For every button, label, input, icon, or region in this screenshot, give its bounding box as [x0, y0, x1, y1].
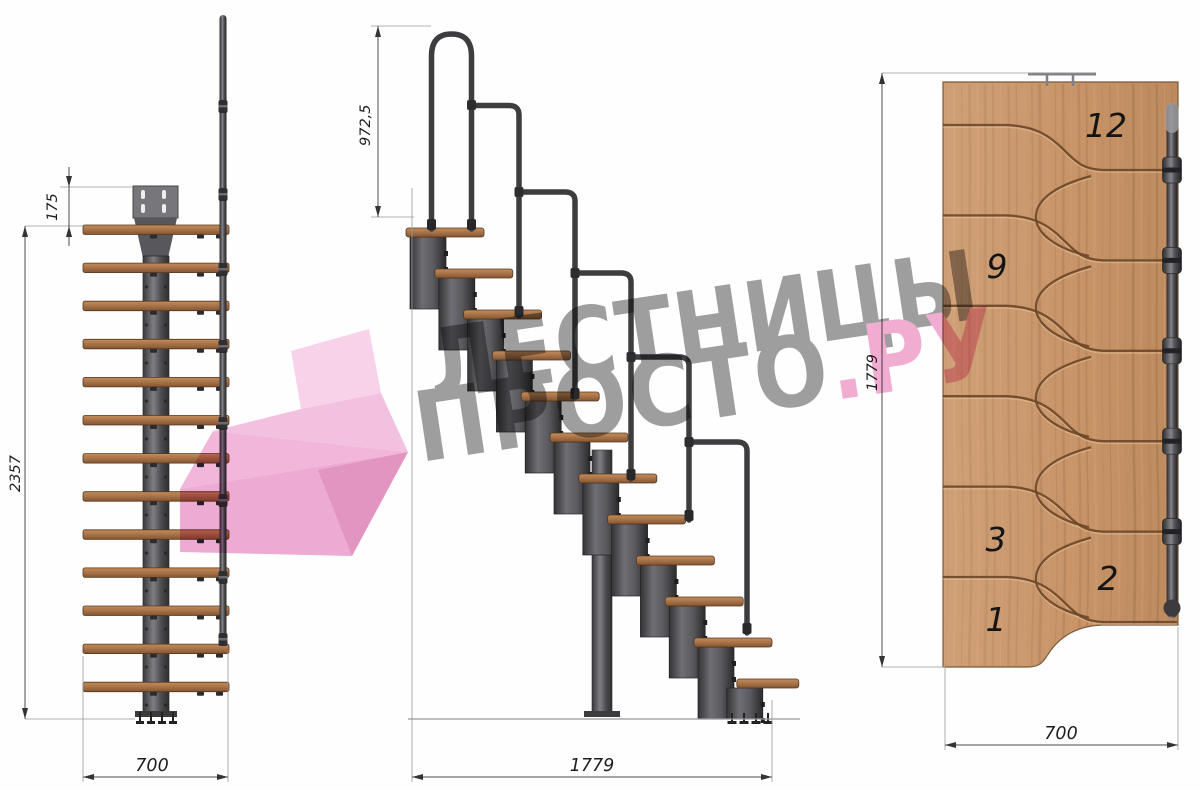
post-joint-ridge [219, 638, 228, 641]
front-tread [83, 606, 229, 616]
column-rivet [145, 551, 148, 554]
side-tread [521, 392, 599, 401]
anchor-bolt-head [147, 721, 155, 724]
baluster-fitting-notch [1163, 348, 1182, 353]
anchor-bolt-head [169, 721, 177, 724]
column-rivet [164, 323, 167, 326]
column-rivet [164, 703, 167, 706]
tread-bracket-nub [197, 235, 204, 239]
rail-tee-fitting [685, 437, 694, 447]
front-tread [83, 225, 229, 235]
anchor-bolt-head [136, 721, 144, 724]
support-column-base [584, 711, 620, 717]
module-bolt [674, 579, 678, 584]
column-rivet [164, 475, 167, 478]
tread-bracket-nub [150, 577, 157, 581]
dim-arrow [375, 26, 381, 37]
front-tread [83, 377, 229, 387]
step-label-1: 1 [986, 600, 1007, 639]
baluster-fitting-notch [1163, 439, 1182, 444]
side-tread [694, 638, 772, 647]
module-bolt [588, 456, 592, 461]
step-label-3: 3 [986, 520, 1007, 559]
tread-bracket-nub [197, 501, 204, 505]
front-tread [83, 454, 229, 464]
baluster-fitting-notch [1163, 168, 1182, 173]
module-bolt [502, 333, 506, 338]
front-tread [83, 568, 229, 578]
dim-arrow [412, 774, 423, 780]
rail-foot-fitting [685, 510, 694, 521]
column-rivet [145, 475, 148, 478]
floor-anchor-bolt-head [752, 721, 761, 724]
post-joint-ridge [219, 105, 228, 108]
dim-arrow [375, 206, 381, 217]
post-joint-ridge [219, 345, 228, 348]
dim-total-height: 2357 [8, 454, 24, 492]
post-joint-ridge [219, 193, 228, 196]
step-label-12: 12 [1085, 106, 1127, 145]
tread-bracket-nub [150, 311, 157, 315]
dim-arrow [217, 774, 228, 780]
module-bolt [732, 661, 736, 666]
side-tread [608, 515, 686, 524]
tread-bracket-nub [150, 539, 157, 543]
dim-side-length: 1779 [570, 756, 615, 776]
rail-foot-fitting [515, 306, 524, 317]
tread-bracket-nub [150, 273, 157, 277]
tread-bracket-nub [197, 387, 204, 391]
tread-bracket-nub [197, 616, 204, 620]
column-rivet [164, 285, 167, 288]
plan-handrail-cap [1166, 103, 1179, 133]
column-rivet [164, 361, 167, 364]
handrail-segment-1 [472, 106, 520, 317]
tread-bracket-nub [216, 654, 223, 658]
side-tread [464, 310, 542, 319]
dim-plate-offset: 175 [45, 193, 61, 221]
tread-bracket-nub [150, 692, 157, 696]
tread-bracket-nub [197, 577, 204, 581]
tread-bracket-nub [150, 349, 157, 353]
module-bolt [732, 677, 736, 682]
column-rivet [145, 323, 148, 326]
tread-bracket-nub [150, 463, 157, 467]
front-tread [83, 416, 229, 426]
tread-bracket-nub [197, 349, 204, 353]
front-tread [83, 492, 229, 502]
front-view [83, 15, 229, 724]
column-rivet [145, 665, 148, 668]
tread-bracket-nub [197, 654, 204, 658]
tread-bracket-nub [150, 387, 157, 391]
module-bolt [761, 702, 765, 707]
anchor-bolt-head [158, 721, 166, 724]
column-rivet [164, 513, 167, 516]
post-joint-ridge [219, 268, 228, 271]
module-bolt [559, 415, 563, 420]
module-bolt [530, 374, 534, 379]
front-tread [83, 682, 229, 692]
post-joint-ridge [219, 422, 228, 425]
module-bolt [444, 251, 448, 256]
tread-bracket-nub [150, 654, 157, 658]
post-joint-ridge [219, 499, 228, 502]
step-label-9: 9 [987, 247, 1008, 286]
rail-tee-fitting [627, 352, 636, 362]
column-rivet [145, 703, 148, 706]
front-tread [83, 263, 229, 273]
side-tread [435, 269, 513, 278]
tread-bracket-nub [197, 425, 204, 429]
wall-mount-plate [133, 186, 178, 218]
plan-view: 12 9 3 2 1 [943, 74, 1182, 667]
column-rivet [164, 551, 167, 554]
tread-bracket-nub [197, 311, 204, 315]
tread-bracket-nub [216, 692, 223, 696]
side-tread [665, 597, 743, 606]
tread-bracket-nub [197, 692, 204, 696]
dim-arrow [879, 73, 885, 84]
module-bolt [473, 292, 477, 297]
column-rivet [164, 437, 167, 440]
tread-bracket-nub [197, 463, 204, 467]
drawing-canvas: 12 9 3 2 1 175 2357 700 972,5 1779 1779 … [0, 0, 1200, 790]
tread-bracket-nub [150, 616, 157, 620]
plan-rail-end-ball [1164, 600, 1181, 617]
step-label-2: 2 [1098, 559, 1119, 598]
front-tread [83, 301, 229, 311]
dim-arrow [945, 742, 956, 748]
module-bolt [646, 538, 650, 543]
dim-arrow [1167, 742, 1178, 748]
side-tread [579, 474, 657, 483]
tread-bracket-nub [197, 273, 204, 277]
front-tread [83, 644, 229, 654]
front-tread [83, 530, 229, 540]
staircase-technical-drawing: 12 9 3 2 1 175 2357 700 972,5 1779 1779 … [0, 0, 1200, 790]
handrail-segment-4 [631, 357, 689, 520]
dim-plan-height: 1779 [865, 354, 881, 391]
column-rivet [145, 285, 148, 288]
floor-anchor-bolt-head [728, 721, 737, 724]
rail-tee-fitting [571, 268, 580, 278]
column-rivet [145, 399, 148, 402]
floor-anchor-bolt-head [764, 721, 773, 724]
front-tread [83, 339, 229, 349]
rail-foot-fitting [427, 219, 436, 230]
rail-tee-fitting [467, 100, 476, 110]
tread-bracket-nub [197, 539, 204, 543]
dim-arrow [761, 774, 772, 780]
side-tread [636, 556, 714, 565]
dim-arrow [66, 226, 72, 237]
rail-foot-fitting [627, 469, 636, 480]
dim-arrow [83, 774, 94, 780]
tread-bracket-nub [150, 425, 157, 429]
baluster-fitting-notch [1163, 529, 1182, 534]
column-rivet [164, 399, 167, 402]
column-rivet [164, 665, 167, 668]
column-rivet [145, 589, 148, 592]
column-rivet [145, 361, 148, 364]
rail-foot-fitting [467, 219, 476, 230]
side-tread [550, 433, 628, 442]
column-base-flange [135, 711, 177, 717]
floor-anchor-bolt-head [740, 721, 749, 724]
dim-handrail-height: 972,5 [358, 104, 374, 146]
tread-bracket-nub [150, 501, 157, 505]
column-rivet [145, 627, 148, 630]
handrail-loop [432, 34, 472, 229]
post-joint-ridge [219, 576, 228, 579]
dim-arrow [22, 708, 28, 719]
side-tread [492, 351, 570, 360]
column-rivet [164, 627, 167, 630]
rail-tee-fitting [515, 187, 524, 197]
module-bolt [703, 620, 707, 625]
dim-arrow [879, 656, 885, 667]
dim-front-width: 700 [135, 756, 168, 776]
tread-bracket-nub [150, 235, 157, 239]
rail-foot-fitting [571, 388, 580, 399]
rail-foot-fitting [743, 623, 752, 634]
dim-plan-width: 700 [1044, 724, 1077, 744]
module-bolt [617, 497, 621, 502]
column-rivet [145, 437, 148, 440]
side-tread [737, 679, 799, 688]
dim-arrow [66, 176, 72, 187]
column-rivet [164, 589, 167, 592]
column-rivet [145, 513, 148, 516]
dim-arrow [22, 226, 28, 237]
baluster-fitting-notch [1163, 258, 1182, 263]
side-view [406, 34, 800, 724]
